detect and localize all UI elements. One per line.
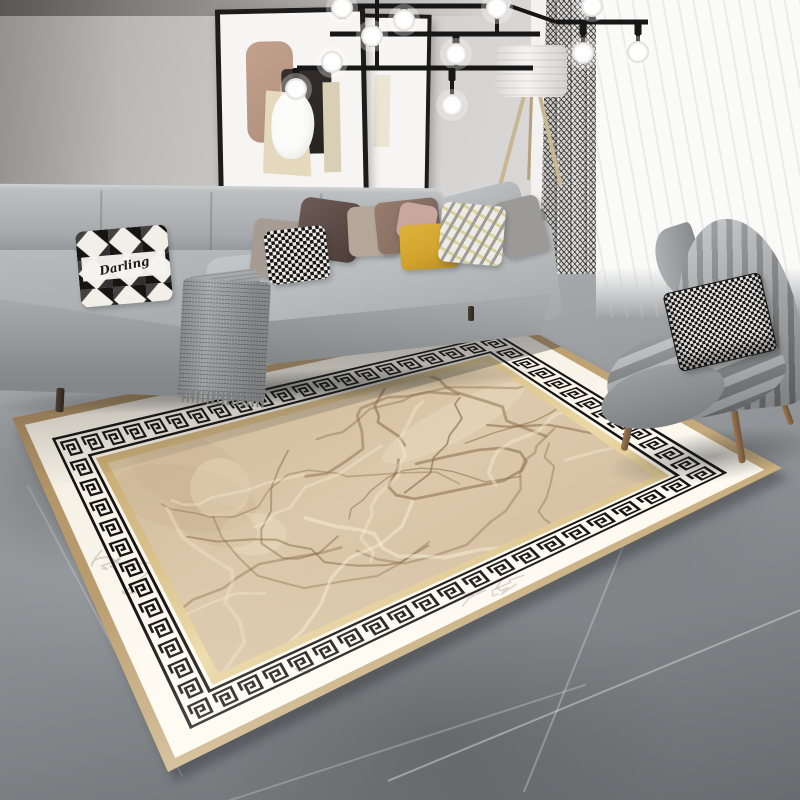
tile-grout-line <box>388 600 800 782</box>
tile-grout-line <box>53 684 586 800</box>
art-shape-cream <box>374 75 391 147</box>
throw-blanket <box>177 278 271 402</box>
sofa-leg <box>55 388 64 412</box>
pillow-houndstooth <box>263 224 331 285</box>
pillow-darling-script: Darling <box>75 224 173 308</box>
sofa-leg <box>468 306 474 321</box>
tile-grout-line <box>523 514 637 793</box>
armchair <box>600 218 800 508</box>
pillow-text-band: Darling <box>81 250 167 282</box>
art-frame-left <box>215 6 369 211</box>
pillow-geometric-zigzag <box>438 201 507 266</box>
pillow-script-text: Darling <box>98 254 151 278</box>
living-room-photo: Darling <box>0 0 800 800</box>
floor-lamp-shade <box>497 45 567 97</box>
art-shape-beige <box>322 82 341 173</box>
art-canvas-left <box>229 21 355 198</box>
floor-shadow-left <box>0 390 200 630</box>
art-canvas-right <box>364 27 419 188</box>
